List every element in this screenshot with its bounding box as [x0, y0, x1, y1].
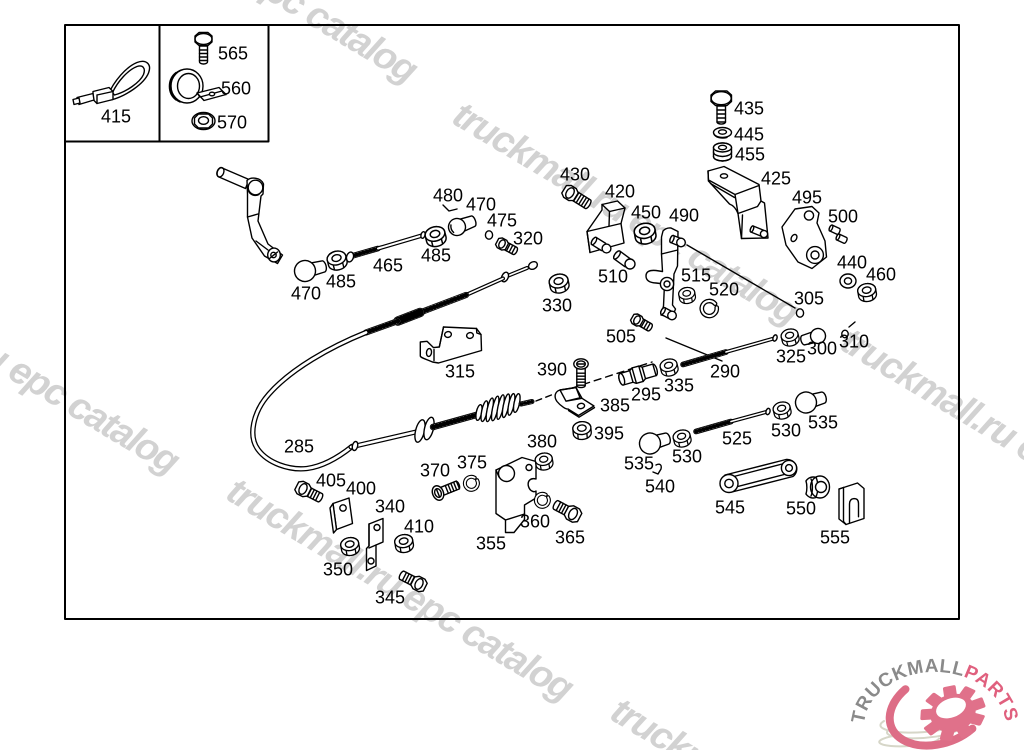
svg-text:290: 290 [710, 362, 740, 382]
svg-text:360: 360 [520, 512, 550, 532]
svg-text:490: 490 [669, 206, 699, 226]
svg-text:450: 450 [631, 203, 661, 223]
svg-text:535: 535 [624, 454, 654, 474]
svg-text:370: 370 [420, 461, 450, 481]
svg-text:350: 350 [323, 560, 353, 580]
svg-text:305: 305 [794, 289, 824, 309]
svg-text:565: 565 [218, 44, 248, 64]
svg-text:365: 365 [555, 528, 585, 548]
svg-text:475: 475 [487, 211, 517, 231]
svg-text:330: 330 [542, 296, 572, 316]
svg-text:470: 470 [291, 284, 321, 304]
svg-text:465: 465 [373, 256, 403, 276]
svg-text:375: 375 [457, 453, 487, 473]
svg-text:430: 430 [560, 165, 590, 185]
svg-text:545: 545 [715, 498, 745, 518]
svg-text:340: 340 [375, 497, 405, 517]
svg-text:435: 435 [734, 99, 764, 119]
svg-text:390: 390 [537, 360, 567, 380]
svg-text:300: 300 [807, 339, 837, 359]
svg-text:540: 540 [645, 477, 675, 497]
svg-text:425: 425 [761, 169, 791, 189]
svg-text:410: 410 [404, 517, 434, 537]
svg-text:515: 515 [681, 266, 711, 286]
svg-text:285: 285 [284, 437, 314, 457]
svg-text:395: 395 [594, 424, 624, 444]
svg-text:525: 525 [722, 429, 752, 449]
svg-text:485: 485 [326, 272, 356, 292]
svg-text:480: 480 [433, 186, 463, 206]
svg-text:440: 440 [837, 253, 867, 273]
svg-text:385: 385 [600, 396, 630, 416]
svg-text:535: 535 [808, 413, 838, 433]
svg-text:420: 420 [605, 182, 635, 202]
svg-text:495: 495 [792, 188, 822, 208]
svg-text:415: 415 [101, 107, 131, 127]
svg-text:555: 555 [820, 528, 850, 548]
svg-text:520: 520 [709, 280, 739, 300]
svg-text:460: 460 [866, 265, 896, 285]
svg-text:380: 380 [527, 432, 557, 452]
svg-text:505: 505 [606, 327, 636, 347]
svg-text:320: 320 [513, 229, 543, 249]
svg-text:530: 530 [771, 421, 801, 441]
svg-text:530: 530 [672, 447, 702, 467]
svg-text:570: 570 [217, 113, 247, 133]
svg-text:560: 560 [221, 79, 251, 99]
svg-text:355: 355 [476, 534, 506, 554]
svg-text:550: 550 [786, 499, 816, 519]
svg-text:500: 500 [828, 207, 858, 227]
svg-text:315: 315 [445, 362, 475, 382]
svg-text:445: 445 [734, 125, 764, 145]
svg-text:510: 510 [598, 267, 628, 287]
svg-text:485: 485 [421, 246, 451, 266]
svg-text:325: 325 [776, 347, 806, 367]
svg-text:335: 335 [664, 376, 694, 396]
svg-text:405: 405 [316, 471, 346, 491]
svg-text:310: 310 [839, 332, 869, 352]
svg-text:455: 455 [735, 145, 765, 165]
svg-text:295: 295 [631, 385, 661, 405]
svg-text:400: 400 [346, 479, 376, 499]
svg-text:345: 345 [375, 588, 405, 608]
